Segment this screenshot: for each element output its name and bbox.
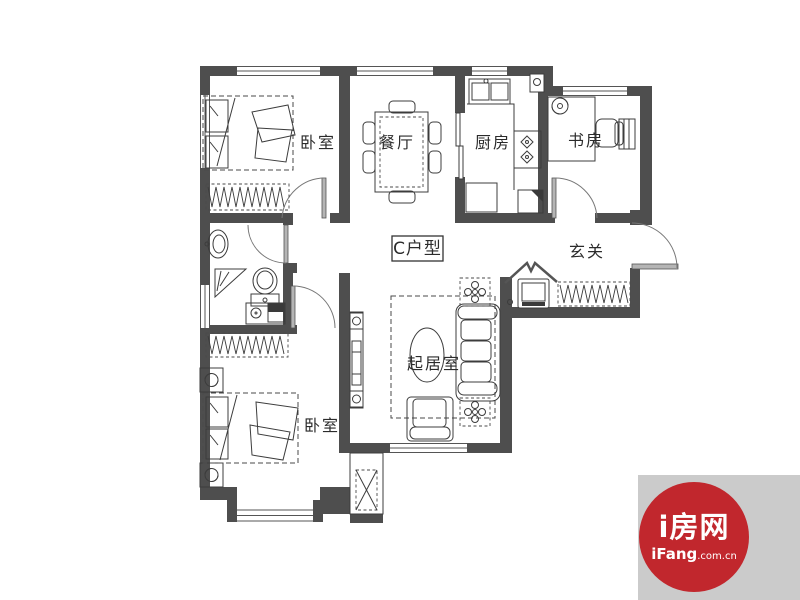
label-bedroom-bottom: 卧室	[304, 416, 340, 435]
chair	[363, 151, 375, 173]
speaker-icon	[353, 317, 361, 325]
speaker-icon	[353, 395, 361, 403]
watermark-circle: i房网 iFang.com.cn	[639, 482, 749, 592]
dining-table	[375, 112, 428, 192]
tv-cabinet	[350, 312, 363, 408]
watermark-badge: i房网 iFang.com.cn	[638, 475, 800, 600]
door-study	[552, 178, 597, 218]
wardrobe-top	[206, 184, 289, 210]
shower	[215, 269, 246, 297]
unit-type-label: C户型	[392, 236, 443, 261]
plant-icon	[460, 278, 490, 306]
chair	[429, 122, 441, 144]
svg-text:C户型: C户型	[393, 239, 442, 259]
window-kitchen	[472, 66, 507, 76]
label-living: 起居室	[407, 354, 461, 373]
fridge	[466, 183, 497, 212]
watermark-brand: i房网	[659, 513, 730, 542]
watermark-site: iFang.com.cn	[651, 546, 737, 562]
label-kitchen: 厨房	[475, 133, 511, 152]
bathroom-fixtures	[205, 230, 285, 324]
chair	[389, 101, 415, 113]
chair	[429, 151, 441, 173]
door-bathroom	[248, 225, 288, 263]
tv	[352, 341, 361, 385]
faucet-icon	[484, 79, 488, 83]
door-bedroom-bottom	[291, 286, 335, 328]
window-living-bottom	[390, 443, 467, 453]
blanket	[256, 402, 298, 440]
bedroom-top-furniture	[203, 96, 295, 210]
window-bathroom-left	[200, 285, 210, 328]
duct-shaft	[350, 453, 383, 514]
window-dining	[357, 66, 433, 76]
burner-icon	[521, 151, 533, 163]
shoe-cabinet	[558, 282, 630, 306]
chair	[363, 122, 375, 144]
window-bedroom-bottom-bay	[237, 510, 313, 521]
chair	[389, 191, 415, 203]
floorplan-page: 卧室 餐厅 厨房 书房 玄关 起居室 卧室 C户型 i房网 iFang.com.…	[0, 0, 800, 600]
window-study	[563, 86, 627, 96]
wardrobe-bottom	[206, 333, 288, 357]
burner-icon	[521, 136, 533, 148]
dining-furniture	[363, 101, 441, 203]
sofa	[456, 304, 500, 401]
gas-meter	[530, 74, 544, 92]
armchair	[407, 397, 453, 441]
plant-icon	[460, 398, 490, 426]
study-rug	[548, 97, 595, 161]
living-furniture	[350, 278, 500, 514]
bedroom-bottom-furniture	[200, 333, 298, 487]
toilet	[251, 268, 279, 306]
door-entry	[632, 223, 678, 269]
door-kitchen-sliding	[456, 113, 463, 179]
label-bedroom-top: 卧室	[300, 133, 336, 152]
label-dining: 餐厅	[379, 133, 415, 152]
label-study: 书房	[568, 131, 604, 150]
study-furniture	[548, 97, 635, 161]
ceiling-fan-icon	[552, 98, 568, 114]
window-bedroom-top	[237, 66, 320, 76]
label-entry: 玄关	[569, 242, 605, 261]
entry-furniture	[505, 263, 630, 308]
blanket	[252, 105, 295, 142]
